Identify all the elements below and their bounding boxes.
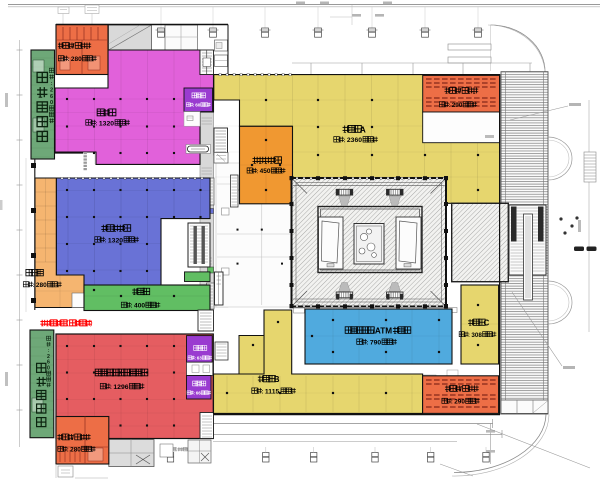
svg-text:63: 63 (197, 356, 203, 361)
svg-text:B: B (274, 375, 280, 384)
svg-text:6: 6 (50, 94, 53, 100)
svg-text:/ATM: /ATM (373, 327, 393, 336)
svg-text:400: 400 (134, 303, 145, 310)
svg-text:450: 450 (260, 168, 271, 175)
svg-text:/: / (459, 87, 461, 96)
svg-text:2: 2 (50, 88, 53, 94)
svg-text:1320: 1320 (99, 120, 114, 127)
svg-text:66: 66 (196, 391, 202, 396)
svg-text:C: C (484, 319, 490, 328)
svg-text:1296: 1296 (113, 384, 128, 391)
svg-text:1115: 1115 (265, 389, 280, 396)
svg-text:290: 290 (452, 102, 463, 109)
svg-text:280: 280 (71, 56, 82, 63)
svg-text:60: 60 (195, 103, 201, 108)
svg-text:280: 280 (36, 282, 47, 289)
svg-text:308: 308 (471, 332, 482, 339)
svg-text:790: 790 (370, 340, 382, 347)
svg-text:/: / (72, 42, 74, 51)
svg-text:/: / (72, 433, 74, 442)
svg-text:2360: 2360 (347, 137, 362, 144)
svg-text:290: 290 (454, 399, 465, 406)
svg-text:A: A (360, 125, 366, 135)
svg-text:0: 0 (47, 366, 50, 372)
svg-text:/: / (460, 385, 462, 394)
svg-text:280: 280 (70, 447, 81, 454)
svg-text:0: 0 (50, 100, 53, 106)
svg-text:1320: 1320 (108, 237, 123, 244)
